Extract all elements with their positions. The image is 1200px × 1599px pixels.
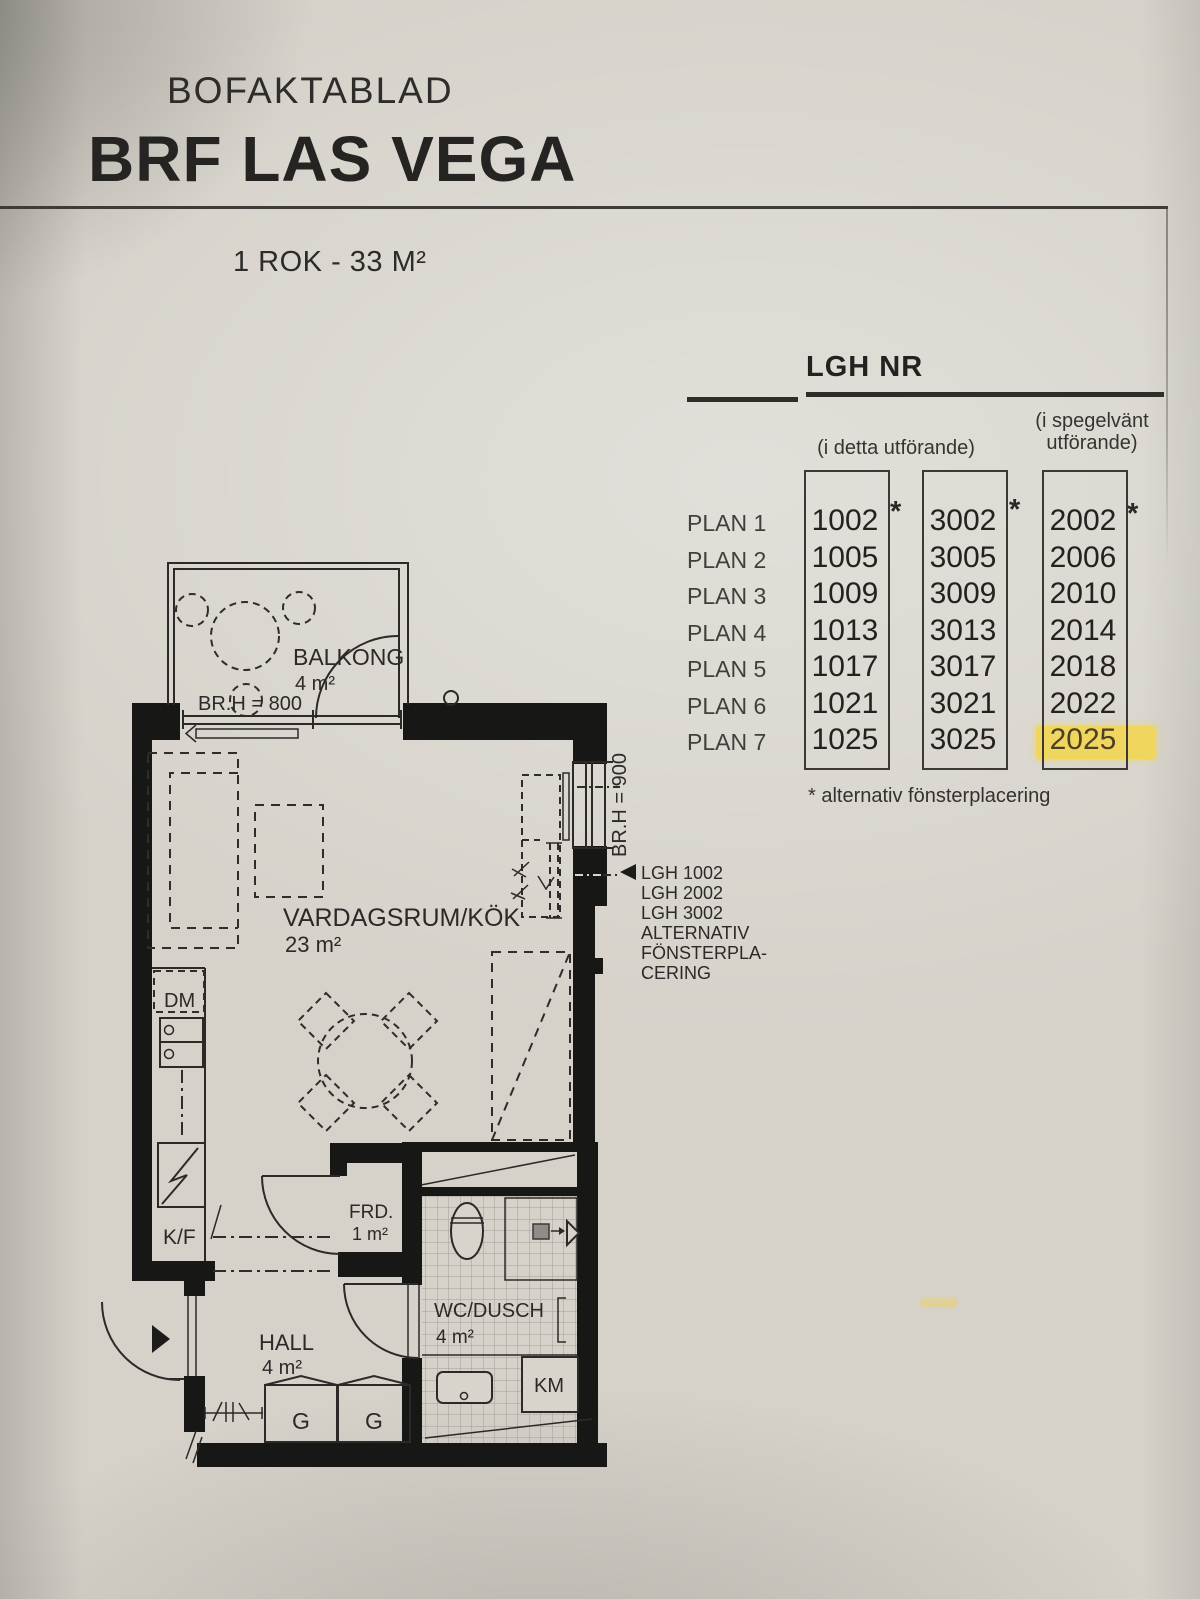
lgh-number: 1013	[802, 616, 888, 646]
balcony-rail-note: BR.H = 800	[198, 693, 302, 715]
svg-text:ALTERNATIV: ALTERNATIV	[641, 923, 749, 943]
desk-icon	[522, 775, 560, 917]
lgh-number: 2018	[1040, 652, 1126, 682]
arrow-left-icon	[620, 864, 636, 880]
doc-kicker: BOFAKTABLAD	[167, 70, 454, 112]
dining-table-icon	[298, 993, 437, 1131]
lgh-number: 3017	[920, 652, 1006, 682]
lgh-number: 1017	[802, 652, 888, 682]
lgh-number: 1002	[802, 506, 888, 536]
lgh-number: 1025	[802, 725, 888, 755]
hall-area: 4 m²	[262, 1357, 302, 1379]
lgh-number: 2006	[1040, 543, 1126, 573]
table-rule-main	[806, 392, 1164, 397]
dishwasher-label: DM	[164, 990, 195, 1012]
balcony-label: BALKONG	[293, 644, 404, 670]
page-edge-line	[1166, 207, 1168, 567]
table-heading: LGH NR	[806, 351, 923, 384]
svg-text:FÖNSTERPLA-: FÖNSTERPLA-	[641, 943, 767, 963]
lgh-number: 3005	[920, 543, 1006, 573]
wardrobe-label: G	[365, 1408, 383, 1434]
balcony-table-icon	[211, 602, 279, 670]
highlighter-smudge	[920, 1297, 958, 1308]
asterisk-col1: *	[890, 496, 901, 529]
washing-machine-label: KM	[534, 1375, 564, 1397]
toilet-icon	[450, 1203, 484, 1259]
floor-drain-icon	[533, 1224, 549, 1239]
sofa-icon	[148, 753, 238, 948]
lgh-number: 2014	[1040, 616, 1126, 646]
column-header-mirrored-version: (i spegelvänt utförande)	[1012, 410, 1172, 454]
window-height-note: BR.H = 900	[609, 753, 631, 857]
title-divider	[0, 206, 1168, 209]
lgh-number: 3002	[920, 506, 1006, 536]
lgh-number: 1021	[802, 689, 888, 719]
page-title: BRF LAS VEGA	[88, 122, 576, 196]
column-marker	[444, 691, 458, 705]
balcony-chair-icon	[283, 592, 315, 624]
fridge-label: K/F	[163, 1226, 196, 1249]
sink-icon	[437, 1372, 492, 1403]
lgh-number: 2022	[1040, 689, 1126, 719]
living-room-label: VARDAGSRUM/KÖK	[283, 904, 520, 932]
svg-text:LGH 1002: LGH 1002	[641, 863, 723, 883]
bathroom-door	[344, 1284, 419, 1358]
storage-door	[262, 1176, 340, 1254]
living-room-furniture	[148, 753, 570, 1140]
wardrobe-label: G	[292, 1408, 310, 1434]
apartment-size-subtitle: 1 ROK - 33 M²	[233, 246, 426, 279]
window-bench	[563, 773, 569, 840]
bathroom-label: WC/DUSCH	[434, 1300, 544, 1322]
svg-text:LGH 3002: LGH 3002	[641, 903, 723, 923]
table-footnote: * alternativ fönsterplacering	[808, 785, 1050, 808]
table-rule-left	[687, 397, 798, 402]
balcony-chair-icon	[176, 594, 208, 626]
alt-window-annotation: LGH 1002 LGH 2002 LGH 3002 ALTERNATIV FÖ…	[620, 863, 767, 983]
svg-text:CERING: CERING	[641, 963, 711, 983]
hall-label: HALL	[259, 1330, 314, 1355]
lgh-number: 3025	[920, 725, 1006, 755]
plan-row-label: PLAN 1	[687, 510, 797, 537]
coffee-table-icon	[255, 805, 323, 897]
storage-area: 1 m²	[352, 1224, 388, 1244]
column-header-current-version: (i detta utförande)	[796, 437, 996, 459]
balcony-area: 4 m²	[295, 673, 335, 695]
storage-label: FRD.	[349, 1202, 393, 1223]
living-room-area: 23 m²	[285, 932, 341, 957]
lgh-number: 2002	[1040, 506, 1126, 536]
lgh-number-highlighted: 2025	[1040, 725, 1126, 755]
bofaktablad-page: BOFAKTABLAD BRF LAS VEGA 1 ROK - 33 M² L…	[0, 0, 1200, 1599]
lgh-number: 2010	[1040, 579, 1126, 609]
asterisk-col3: *	[1127, 498, 1138, 531]
stove-icon	[160, 1018, 203, 1067]
lgh-number: 3021	[920, 689, 1006, 719]
fridge-freezer-icon	[158, 1143, 205, 1207]
entrance-arrow-icon	[152, 1325, 170, 1353]
alt-window-zone	[492, 952, 570, 1140]
lgh-number: 3009	[920, 579, 1006, 609]
bathroom-area: 4 m²	[436, 1327, 474, 1348]
lgh-number: 1009	[802, 579, 888, 609]
floor-plan: LGH 1002 LGH 2002 LGH 3002 ALTERNATIV FÖ…	[90, 550, 780, 1480]
lgh-number: 1005	[802, 543, 888, 573]
asterisk-col2: *	[1009, 494, 1020, 527]
shaft-diagonal	[421, 1155, 575, 1185]
svg-text:LGH 2002: LGH 2002	[641, 883, 723, 903]
coat-hooks-icon	[205, 1402, 263, 1422]
lgh-number: 3013	[920, 616, 1006, 646]
